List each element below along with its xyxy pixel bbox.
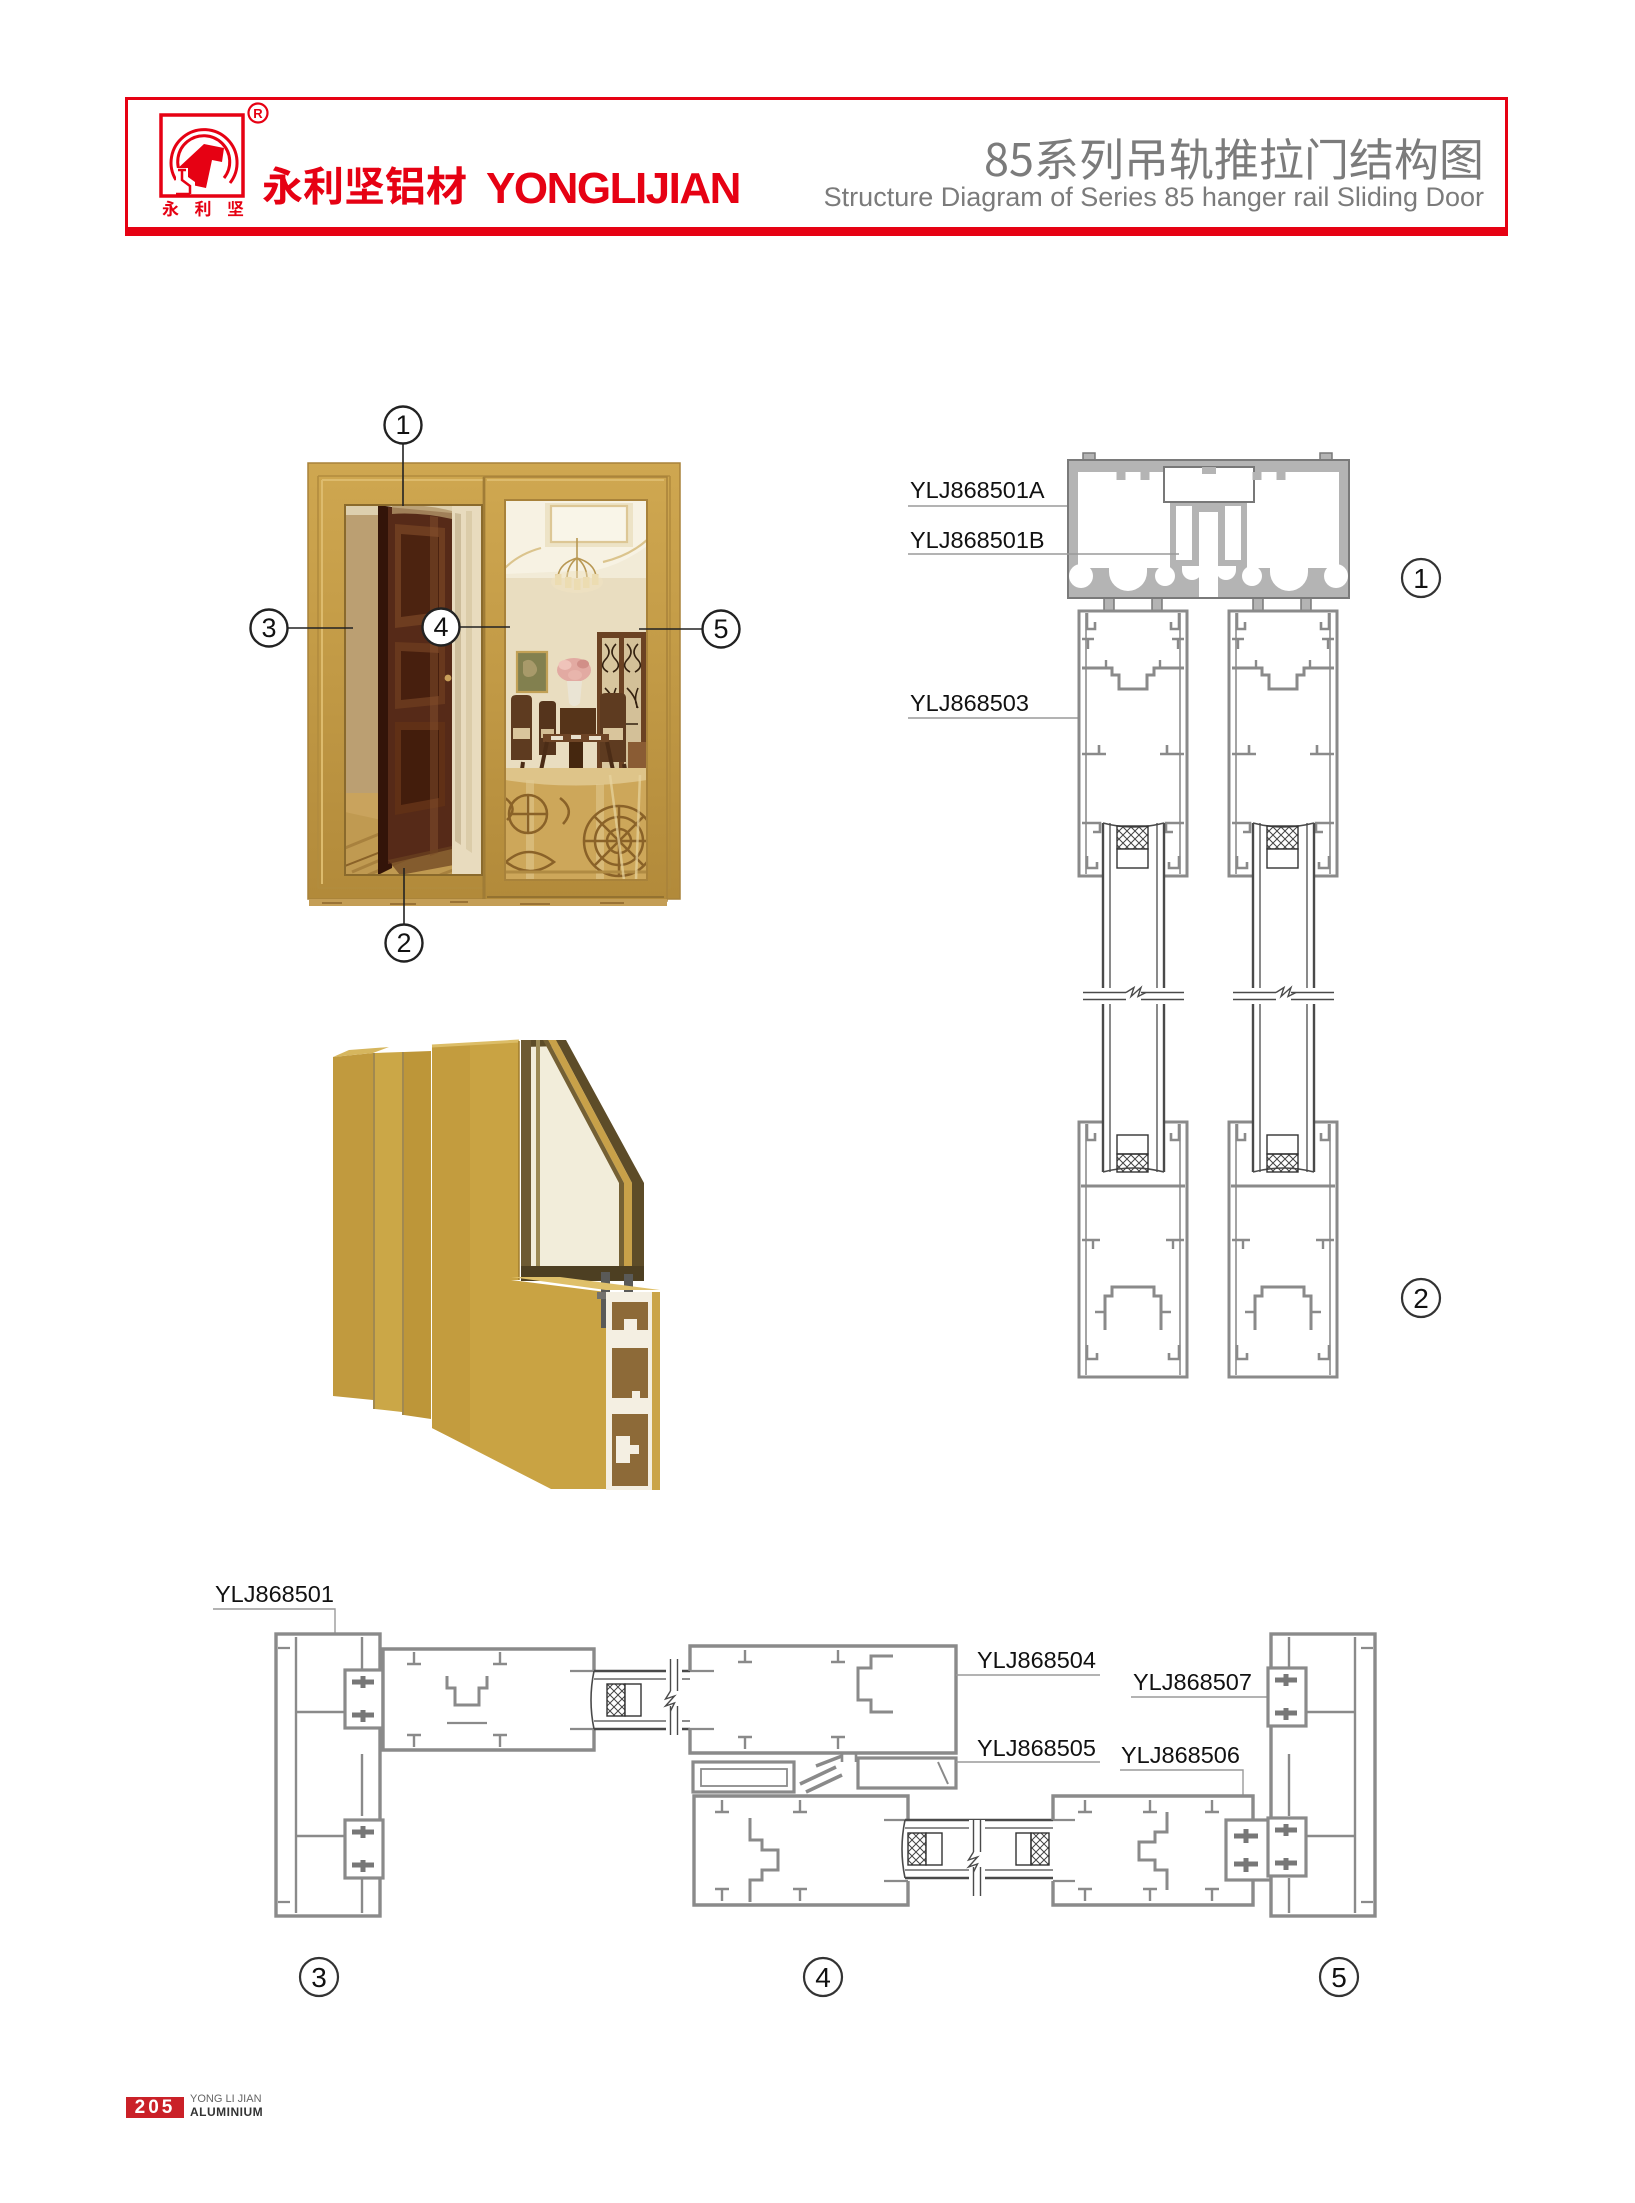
svg-text:5: 5 (1331, 1962, 1347, 1993)
svg-text:YLJ868501B: YLJ868501B (910, 527, 1045, 553)
svg-text:3: 3 (311, 1962, 327, 1993)
svg-text:1: 1 (395, 410, 410, 440)
svg-text:YLJ868501A: YLJ868501A (910, 477, 1045, 503)
svg-text:YLJ868504: YLJ868504 (977, 1647, 1096, 1673)
svg-text:5: 5 (713, 614, 728, 644)
svg-text:1: 1 (1413, 563, 1429, 594)
svg-text:YLJ868503: YLJ868503 (910, 690, 1029, 716)
svg-text:4: 4 (433, 612, 448, 642)
svg-text:YLJ868505: YLJ868505 (977, 1735, 1096, 1761)
svg-text:4: 4 (815, 1962, 831, 1993)
svg-text:2: 2 (1413, 1283, 1429, 1314)
svg-text:YLJ868501: YLJ868501 (215, 1581, 334, 1607)
svg-text:3: 3 (261, 613, 276, 643)
svg-text:YLJ868507: YLJ868507 (1133, 1669, 1252, 1695)
svg-text:2: 2 (396, 928, 411, 958)
svg-text:YLJ868506: YLJ868506 (1121, 1742, 1240, 1768)
